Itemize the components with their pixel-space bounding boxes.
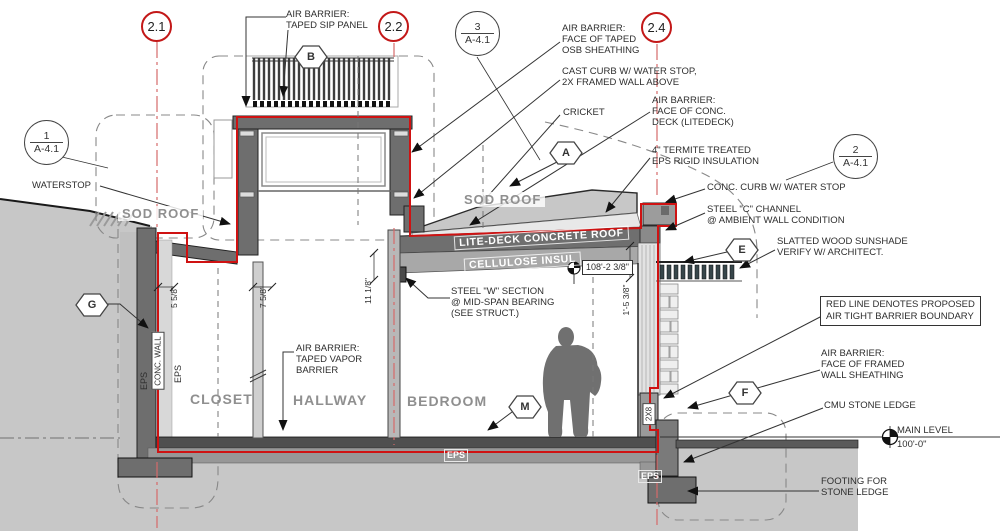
callout-line: TAPED VAPOR (296, 354, 362, 365)
detail-number: 2 (853, 144, 859, 156)
grid-label: 2.2 (384, 19, 402, 34)
callout-line: AIR BARRIER: (296, 343, 362, 354)
grid-bubble-2-1: 2.1 (141, 11, 172, 42)
callout-vapor-barrier: AIR BARRIER: TAPED VAPOR BARRIER (296, 343, 362, 376)
callout-cast-curb: CAST CURB W/ WATER STOP, 2X FRAMED WALL … (562, 66, 697, 88)
note-line: AIR TIGHT BARRIER BOUNDARY (826, 311, 975, 323)
callout-osb-sheathing: AIR BARRIER: FACE OF TAPED OSB SHEATHING (562, 23, 639, 56)
callout-termite-eps: 4" TERMITE TREATED EPS RIGID INSULATION (652, 145, 759, 167)
callout-line: 2X FRAMED WALL ABOVE (562, 77, 697, 88)
detail-number: 3 (475, 21, 481, 33)
callout-line: DECK (LITEDECK) (652, 117, 734, 128)
callout-line: @ AMBIENT WALL CONDITION (707, 215, 845, 226)
dim-partition: 7 5/8" (258, 286, 268, 308)
callout-line: AIR BARRIER: (286, 9, 368, 20)
callout-footing: FOOTING FOR STONE LEDGE (821, 476, 888, 498)
tag-conc-wall: CONC. WALL (152, 332, 165, 390)
callout-line: FACE OF TAPED (562, 34, 639, 45)
zone-sod-roof-mid: SOD ROOF (460, 192, 545, 207)
stone-veneer (660, 284, 678, 394)
callout-line: VERIFY W/ ARCHITECT. (777, 247, 908, 258)
callout-steel-w: STEEL "W" SECTION @ MID-SPAN BEARING (SE… (451, 286, 554, 319)
tag-eps-floor: EPS (444, 449, 468, 462)
grid-label: 2.1 (147, 19, 165, 34)
section-drawing: 2.1 2.2 2.4 3 A-4.1 1 A-4.1 2 A-4.1 B A … (0, 0, 1000, 531)
hex-tag-f: F (742, 387, 749, 399)
callout-line: EPS RIGID INSULATION (652, 156, 759, 167)
callout-sunshade: SLATTED WOOD SUNSHADE VERIFY W/ ARCHITEC… (777, 236, 908, 258)
hex-tag-a: A (562, 147, 570, 159)
dim-parapet: 1'-5 3/8" (621, 284, 631, 315)
note-red-line-boundary: RED LINE DENOTES PROPOSED AIR TIGHT BARR… (820, 296, 981, 326)
callout-line: SLATTED WOOD SUNSHADE (777, 236, 908, 247)
detail-sheet: A-4.1 (839, 156, 872, 169)
callout-cmu-ledge: CMU STONE LEDGE (824, 400, 916, 411)
callout-line: FOOTING FOR (821, 476, 888, 487)
detail-ref-1: 1 A-4.1 (24, 120, 69, 165)
callout-line: CMU STONE LEDGE (824, 400, 916, 411)
detail-sheet: A-4.1 (461, 33, 494, 46)
main-level-elev: 100'-0" (897, 439, 926, 450)
detail-sheet: A-4.1 (30, 142, 63, 155)
detail-number: 1 (44, 130, 50, 142)
callout-line: STONE LEDGE (821, 487, 888, 498)
room-hallway: HALLWAY (293, 392, 367, 408)
dim-roof: 11 1/8" (363, 278, 373, 304)
callout-line: FACE OF CONC. (652, 106, 734, 117)
callout-line: FACE OF FRAMED (821, 359, 904, 370)
callout-line: STEEL "W" SECTION (451, 286, 554, 297)
tag-2x8: 2X8 (643, 403, 656, 425)
callout-line: AIR BARRIER: (562, 23, 639, 34)
callout-conc-deck: AIR BARRIER: FACE OF CONC. DECK (LITEDEC… (652, 95, 734, 128)
hex-tag-m: M (520, 401, 529, 413)
callout-line: AIR BARRIER: (821, 348, 904, 359)
callout-conc-curb: CONC. CURB W/ WATER STOP (707, 182, 846, 193)
grid-bubble-2-4: 2.4 (641, 12, 672, 43)
callout-sip-panel: AIR BARRIER: TAPED SIP PANEL (286, 9, 368, 31)
tag-eps-right: EPS (638, 470, 662, 483)
callout-line: TAPED SIP PANEL (286, 20, 368, 31)
callout-framed-wall: AIR BARRIER: FACE OF FRAMED WALL SHEATHI… (821, 348, 904, 381)
detail-ref-3: 3 A-4.1 (455, 11, 500, 56)
room-bedroom: BEDROOM (407, 393, 487, 409)
room-closet: CLOSET (190, 391, 253, 407)
callout-c-channel: STEEL "C" CHANNEL @ AMBIENT WALL CONDITI… (707, 204, 845, 226)
wall-sunshade-slats (656, 262, 742, 281)
callout-line: STEEL "C" CHANNEL (707, 204, 845, 215)
note-line: RED LINE DENOTES PROPOSED (826, 299, 975, 311)
callout-line: AIR BARRIER: (652, 95, 734, 106)
dim-ceiling-elev: 108'-2 3/8" (582, 260, 633, 275)
detail-ref-2: 2 A-4.1 (833, 134, 878, 179)
hex-tag-b: B (307, 51, 315, 63)
grid-label: 2.4 (647, 20, 665, 35)
callout-waterstop: WATERSTOP (32, 180, 91, 191)
callout-line: WALL SHEATHING (821, 370, 904, 381)
callout-cricket: CRICKET (563, 107, 605, 118)
tag-eps-left-outer: EPS (139, 372, 149, 390)
dim-wall: 5 5/8" (169, 286, 179, 308)
callout-line: CRICKET (563, 107, 605, 118)
callout-line: CONC. CURB W/ WATER STOP (707, 182, 846, 193)
callout-line: 4" TERMITE TREATED (652, 145, 759, 156)
hex-tag-e: E (738, 244, 745, 256)
main-level-name: MAIN LEVEL (897, 425, 953, 436)
tag-eps-left-inner: EPS (173, 365, 183, 383)
callout-line: WATERSTOP (32, 180, 91, 191)
callout-line: CAST CURB W/ WATER STOP, (562, 66, 697, 77)
callout-line: BARRIER (296, 365, 362, 376)
hex-tag-g: G (88, 299, 97, 311)
callout-line: (SEE STRUCT.) (451, 308, 554, 319)
callout-line: @ MID-SPAN BEARING (451, 297, 554, 308)
zone-sod-roof-left: SOD ROOF (118, 206, 203, 221)
callout-line: OSB SHEATHING (562, 45, 639, 56)
grid-bubble-2-2: 2.2 (378, 11, 409, 42)
